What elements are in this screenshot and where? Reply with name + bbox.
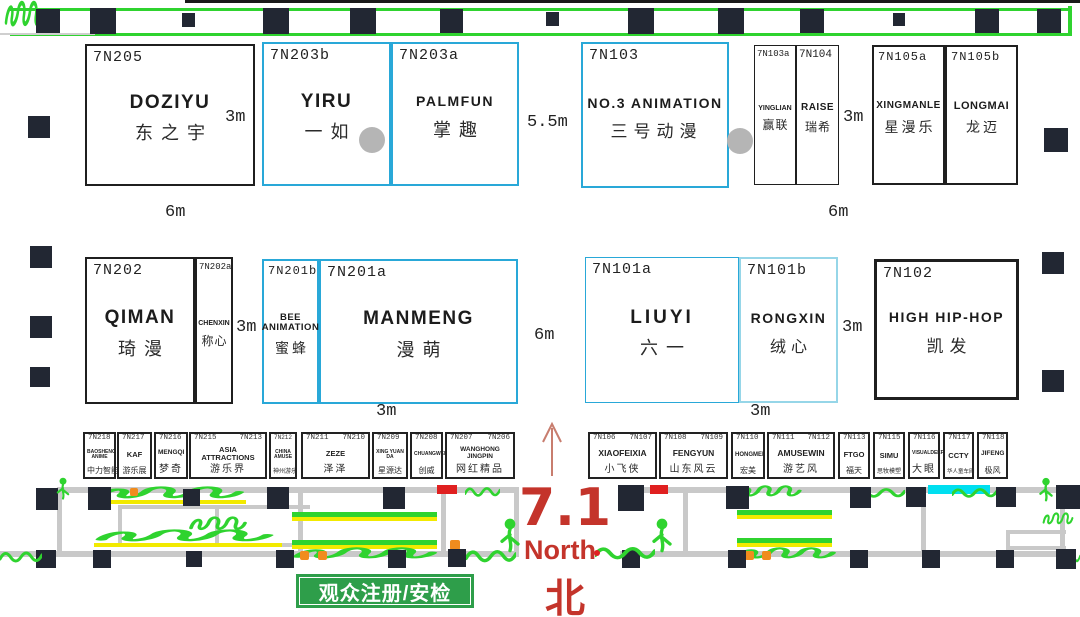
booth-number: 7N110 [736,435,759,443]
band-underline [0,33,95,35]
booth-7N102: 7N102 HIGH HIP-HOP 凯发 [874,259,1019,400]
booth-7N113: 7N113 FTGO 福天 [838,432,870,479]
booth-number: 7N118 [982,435,1005,443]
pillar [718,8,744,34]
booth-number: 7N215 [194,435,217,443]
booth-7N116: 7N116 VISUALDEEP 大眼 [908,432,940,479]
booth-number: 7N208 [415,435,438,443]
corridor-rail [1006,530,1066,534]
turnstile-bar [737,515,832,519]
booth-name-en: CHUANGWEI [414,452,439,457]
pillar [728,550,746,568]
booth-name-en: VISUALDEEP [912,451,936,456]
booth-name-zh: 大眼 [912,465,936,475]
orange-dot [762,551,771,560]
booth-7N101a: 7N101a LIUYI 六一 [585,257,739,403]
registration-security-sign: 观众注册/安检 [296,574,474,608]
booth-number: 7N207 [450,435,473,443]
pillar [1042,252,1064,274]
booth-name-en: RAISE [801,103,834,114]
turnstile-bar [94,543,282,547]
pillar [186,551,202,567]
pillar [263,8,289,34]
booth-name-en: BEE ANIMATION [262,313,320,333]
pillar [1056,485,1080,509]
pillar [93,550,111,568]
pillar [440,9,463,33]
pillar [906,487,926,507]
booth-name-zh: 神州游乐 [273,469,293,475]
plant-squiggle-icon [952,485,997,499]
booth-7N201b: 7N201b BEE ANIMATION 蜜蜂 [262,259,319,404]
booth-7N218: 7N218 BAOSHENG ANIME 中力智能 [83,432,116,479]
booth-name-zh: 绒心 [765,333,812,357]
booth-7N217: 7N217 KAF 游乐展 [117,432,152,479]
booth-name-zh: 游乐展 [121,467,148,475]
booth-number: 7N115 [878,435,901,443]
column-circle [359,127,385,153]
booth-number: 7N212 [274,435,292,441]
booth-name-en: YINGLIAN [758,105,791,112]
measurement-label: 6m [165,203,185,222]
booth-name-en: LIUYI [630,308,694,328]
booth-name-en: WANGHONG JINGPIN [449,447,511,461]
pillar [1037,9,1061,33]
booth-7N212: 7N212 CHINA AMUSE 神州游乐 [269,432,297,479]
booth-number: 7N216 [159,435,182,443]
column-circle [727,128,753,154]
measurement-label: 3m [236,318,256,337]
booth-7N207-7N206: 7N2077N206 WANGHONG JINGPIN 网红精品 [445,432,515,479]
plant-squiggle-icon [52,476,74,502]
booth-7N118: 7N118 JIFENG 极风 [977,432,1008,479]
booth-name-zh: 瑞希 [804,118,831,135]
north-arrow-icon [538,418,566,480]
booth-7N203a: 7N203a PALMFUN 掌趣 [391,42,519,186]
booth-name-zh: 泽泽 [305,465,366,475]
pillar [850,487,871,508]
booth-name-zh: 掌趣 [425,116,485,142]
booth-name-zh: 东之宇 [127,119,213,145]
booth-name-zh: 三号动漫 [608,117,703,142]
booth-name-en: FENGYUN [663,449,724,458]
booth-name-zh: 网红精品 [449,465,511,475]
pillar [1044,128,1068,152]
booth-name-zh: 一如 [297,118,357,144]
plant-squiggle-icon [465,484,500,498]
pillar [90,8,116,34]
booth-number: 7N109 [700,435,723,443]
booth-name-en: XINGMANLE [876,101,941,112]
booth-name-zh: 创威 [414,467,439,475]
booth-7N106-7N107: 7N1067N107 XIAOFEIXIA 小飞侠 [588,432,657,479]
booth-number: 7N106 [593,435,616,443]
pillar [800,9,824,33]
measurement-label: 3m [750,402,770,421]
booth-name-zh: 赢联 [761,116,788,133]
booth-name-en: QIMAN [105,308,176,328]
booth-name-en: NO.3 ANIMATION [587,96,722,111]
booth-7N215-7N213: 7N2157N213 ASIA ATTRACTIONS 游乐界 [189,432,267,479]
booth-7N110: 7N110 HONGMEI 宏美 [731,432,765,479]
red-marker [437,485,457,494]
pillar [618,485,644,511]
booth-7N105b: 7N105b LONGMAI 龙迈 [945,45,1018,185]
orange-dot [745,551,754,560]
booth-name-en: KAF [121,451,148,459]
booth-7N111-7N112: 7N1117N112 AMUSEWIN 游艺风 [767,432,835,479]
registration-security-label: 观众注册/安检 [319,577,452,606]
green-corner-line [1068,6,1072,34]
booth-name-zh: 琦漫 [110,335,170,361]
pillar [183,489,200,506]
booth-7N203b: 7N203b YIRU 一如 [262,42,391,186]
booth-number: 7N217 [122,435,145,443]
booth-number: 7N117 [948,435,971,443]
orange-dot [300,551,309,560]
pillar [182,13,195,27]
booth-name-zh: 极风 [981,467,1004,475]
booth-name-en: PALMFUN [416,94,494,109]
pillar [546,12,559,26]
booth-number: 7N111 [772,435,795,443]
pillar [628,8,654,34]
measurement-label: 3m [843,108,863,127]
booth-name-en: ZEZE [305,450,366,458]
booth-name-zh: 山东风云 [663,465,724,475]
turnstile-loops [290,547,440,560]
booth-name-zh: 福天 [842,467,866,475]
booth-7N216: 7N216 MENGQI 梦奇 [154,432,188,479]
pillar [30,316,52,338]
booth-7N104: 7N104 RAISE 瑞希 [796,45,839,185]
pillar [996,550,1014,568]
booth-name-en: YIRU [301,92,352,112]
booth-name-en: XING YUAN DA [376,450,404,461]
orange-dot [130,488,138,496]
booth-name-en: LONGMAI [954,101,1009,113]
booth-7N201a: 7N201a MANMENG 漫萌 [319,259,518,404]
booth-name-zh: 龙迈 [963,117,1000,137]
booth-7N115: 7N115 SIMU 思牧模塑 [873,432,905,479]
booth-7N202: 7N202 QIMAN 琦漫 [85,257,195,404]
pillar [36,9,60,33]
booth-name-en: XIAOFEIXIA [592,449,653,458]
booth-name-en: MENGQI [158,450,184,457]
measurement-label: 3m [376,402,396,421]
measurement-label: 6m [534,326,554,345]
booth-name-en: FTGO [842,451,866,459]
turnstile-bar [94,500,246,504]
pillar [267,487,289,509]
exhibition-floor-plan: 7N205 DOZIYU 东之宇 7N203b YIRU 一如 7N203a P… [0,0,1080,617]
red-marker [650,485,668,494]
pillar [996,487,1016,507]
pillar [388,550,406,568]
booth-name-en: JIFENG [981,451,1004,458]
booth-name-en: SIMU [877,452,901,460]
booth-name-en: MANMENG [363,309,474,329]
corridor-wall [441,487,446,555]
pillar [1056,549,1076,569]
booth-name-en: HIGH HIP-HOP [889,310,1004,325]
pillar [1042,370,1064,392]
measurement-label: 3m [842,318,862,337]
orange-dot [318,551,327,560]
booth-name-zh: 小飞侠 [592,465,653,475]
measurement-label: 5.5m [527,113,568,132]
booth-name-en: ASIA ATTRACTIONS [193,446,263,462]
booth-name-zh: 华人童车网 [947,470,970,476]
booth-name-zh: 宏美 [735,467,761,475]
booth-7N103: 7N103 NO.3 ANIMATION 三号动漫 [581,42,729,188]
pillar [975,9,999,33]
booth-7N211-7N210: 7N2117N210 ZEZE 泽泽 [301,432,370,479]
pillar [383,487,405,509]
pillar [88,487,111,510]
booth-number: 7N116 [913,435,936,443]
booth-number: 7N206 [487,435,510,443]
pillar [350,8,376,34]
booth-name-zh: 中力智能 [87,467,112,475]
pillar [30,246,52,268]
turnstile-loops [92,529,277,543]
booth-name-zh: 六一 [632,334,692,360]
booth-name-en: HONGMEI [735,452,761,458]
booth-name-zh: 星漫乐 [882,117,936,137]
plant-squiggle-icon [0,548,42,564]
pillar [850,550,868,568]
north-label-zh: 北 [520,566,610,617]
booth-number: 7N112 [807,435,830,443]
booth-name-en: CCTY [947,452,970,460]
measurement-label: 6m [828,203,848,222]
booth-name-zh: 梦奇 [158,465,184,475]
booth-name-en: DOZIYU [130,93,211,113]
booth-name-zh: 星源达 [376,467,404,475]
pillar [30,367,50,387]
pillar [28,116,50,138]
booth-name-en: BAOSHENG ANIME [87,450,112,461]
booth-name-zh: 思牧模塑 [877,469,901,475]
booth-number: 7N218 [88,435,111,443]
top-wall-line [185,0,1080,3]
plant-squiggle-icon [1035,476,1057,504]
booth-7N202a: 7N202a CHENXIN 称心 [195,257,233,404]
booth-name-en: RONGXIN [751,311,827,326]
booth-number: 7N113 [843,435,866,443]
turnstile-bar [292,517,437,521]
booth-number: 7N213 [239,435,262,443]
turnstile-loops [92,486,247,500]
booth-name-zh: 蜜蜂 [272,338,309,358]
booth-number: 7N210 [342,435,365,443]
hall-number: 7.1 [510,478,620,538]
booth-number: 7N209 [377,435,400,443]
corridor-rail [1006,530,1010,550]
booth-7N208: 7N208 CHUANGWEI 创威 [410,432,443,479]
booth-7N209: 7N209 XING YUAN DA 星源达 [372,432,408,479]
north-label-en: North [505,535,615,566]
booth-7N105a: 7N105a XINGMANLE 星漫乐 [872,45,945,185]
booth-number: 7N107 [629,435,652,443]
booth-number: 7N211 [306,435,329,443]
plant-squiggle-icon [188,516,248,532]
booth-name-en: AMUSEWIN [771,449,831,458]
booth-name-zh: 游艺风 [771,465,831,475]
pillar [276,550,294,568]
booth-7N117: 7N117 CCTY 华人童车网 [943,432,974,479]
pillar [893,13,905,26]
pillar [726,486,749,509]
booth-name-en: CHENXIN [198,320,230,327]
booth-7N103a: 7N103a YINGLIAN 赢联 [754,45,796,185]
booth-name-zh: 漫萌 [389,336,449,362]
booth-number: 7N108 [664,435,687,443]
corridor-wall [683,487,688,555]
measurement-label: 3m [225,108,245,127]
top-green-band [10,8,1072,36]
booth-name-zh: 称心 [200,332,227,349]
pillar [922,550,940,568]
pillar [448,549,466,567]
plant-squiggle-icon [1042,512,1074,526]
booth-7N108-7N109: 7N1087N109 FENGYUN 山东风云 [659,432,728,479]
booth-name-zh: 凯发 [921,332,973,357]
booth-7N101b: 7N101b RONGXIN 绒心 [739,257,838,403]
booth-name-en: CHINA AMUSE [273,450,293,461]
booth-name-zh: 游乐界 [193,465,263,475]
